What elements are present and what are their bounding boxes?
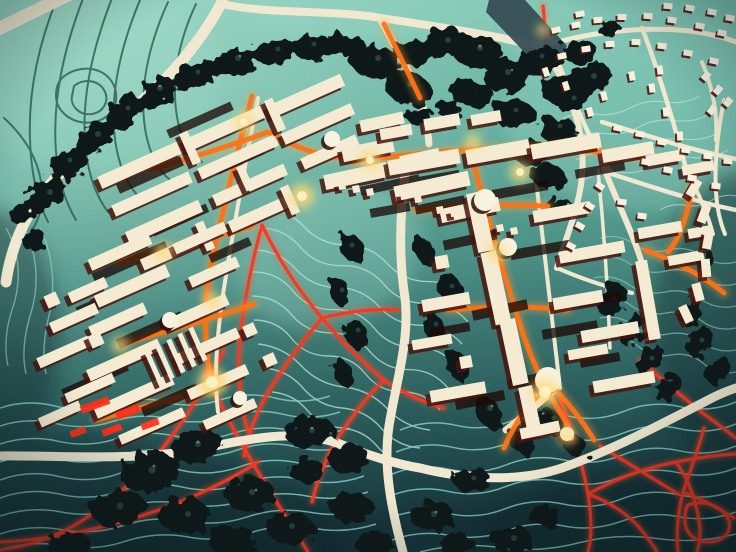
model-photo-svg xyxy=(0,0,736,552)
site-model-photo xyxy=(0,0,736,552)
film-grain xyxy=(0,0,736,552)
